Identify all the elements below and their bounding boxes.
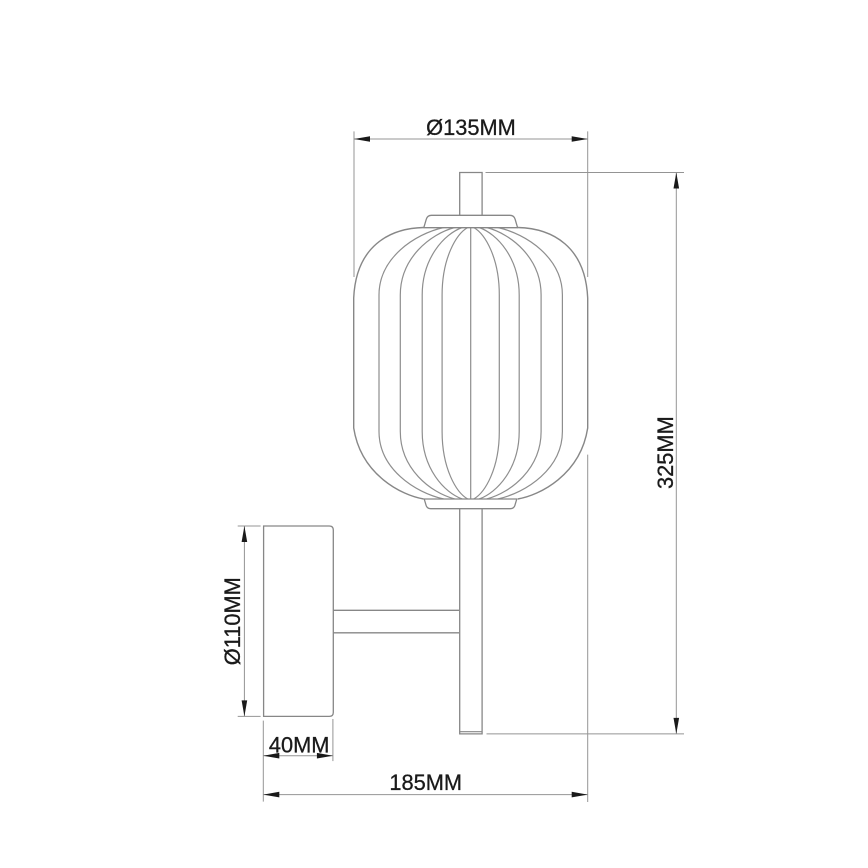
svg-text:Ø110MM: Ø110MM	[220, 577, 245, 665]
svg-text:40MM: 40MM	[269, 732, 330, 757]
svg-text:325MM: 325MM	[653, 416, 678, 489]
svg-text:185MM: 185MM	[389, 770, 462, 795]
svg-text:Ø135MM: Ø135MM	[426, 115, 516, 140]
